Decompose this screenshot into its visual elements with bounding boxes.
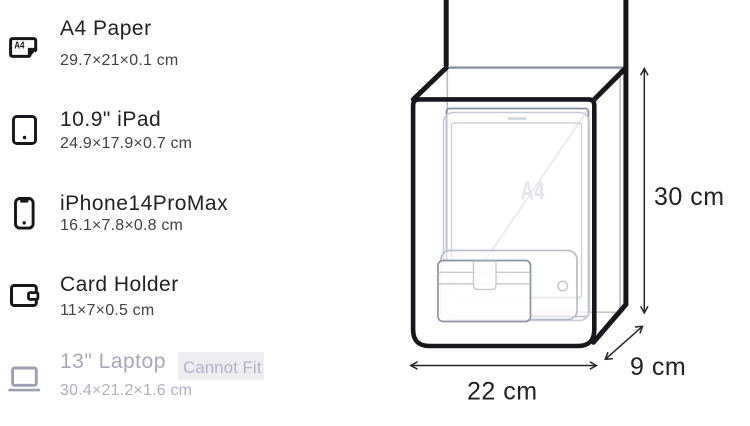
svg-text:9 cm: 9 cm [630, 353, 686, 381]
svg-text:30 cm: 30 cm [654, 183, 725, 211]
svg-text:22 cm: 22 cm [467, 378, 538, 406]
